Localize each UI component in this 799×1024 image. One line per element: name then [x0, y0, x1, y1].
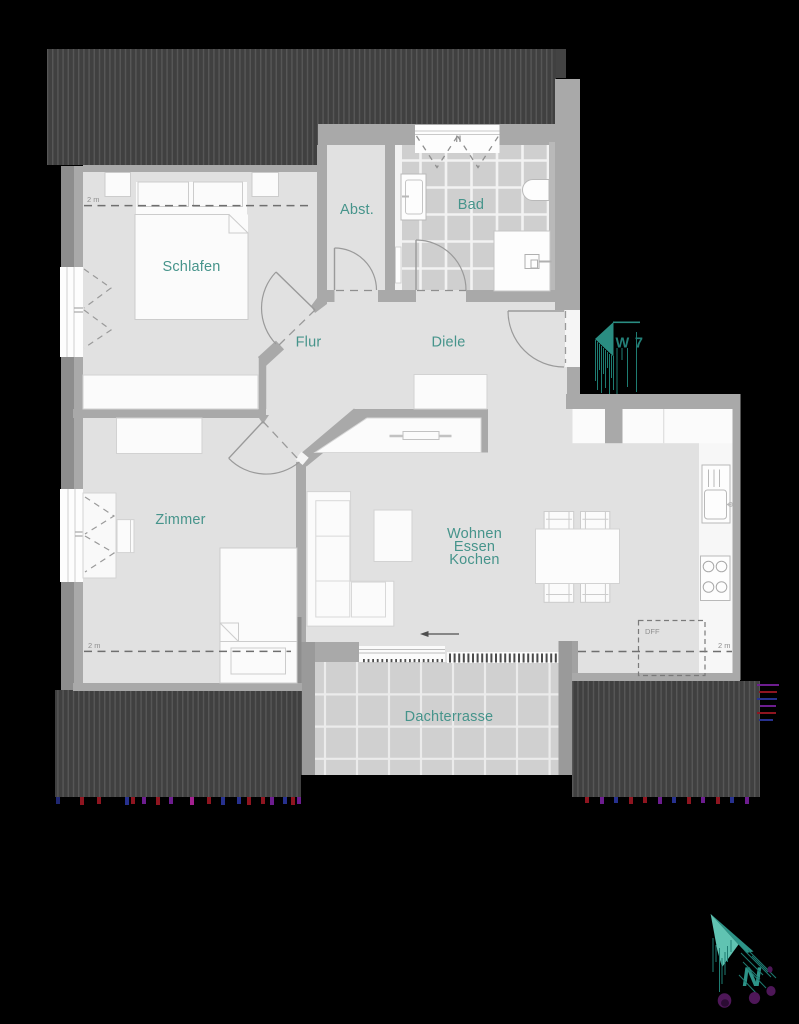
svg-text:Kochen: Kochen [449, 552, 499, 568]
svg-text:Abst.: Abst. [340, 202, 374, 218]
svg-text:2 m: 2 m [87, 195, 100, 204]
svg-text:2 m: 2 m [718, 641, 731, 650]
svg-text:Flur: Flur [296, 335, 322, 351]
svg-text:Diele: Diele [431, 335, 465, 351]
svg-text:Zimmer: Zimmer [155, 512, 205, 528]
svg-text:Dachterrasse: Dachterrasse [405, 709, 494, 725]
svg-text:Schlafen: Schlafen [162, 259, 220, 275]
svg-text:Bad: Bad [458, 197, 484, 213]
svg-text:DFF: DFF [645, 627, 660, 636]
svg-text:2 m: 2 m [88, 641, 101, 650]
svg-text:W 7: W 7 [616, 336, 644, 352]
